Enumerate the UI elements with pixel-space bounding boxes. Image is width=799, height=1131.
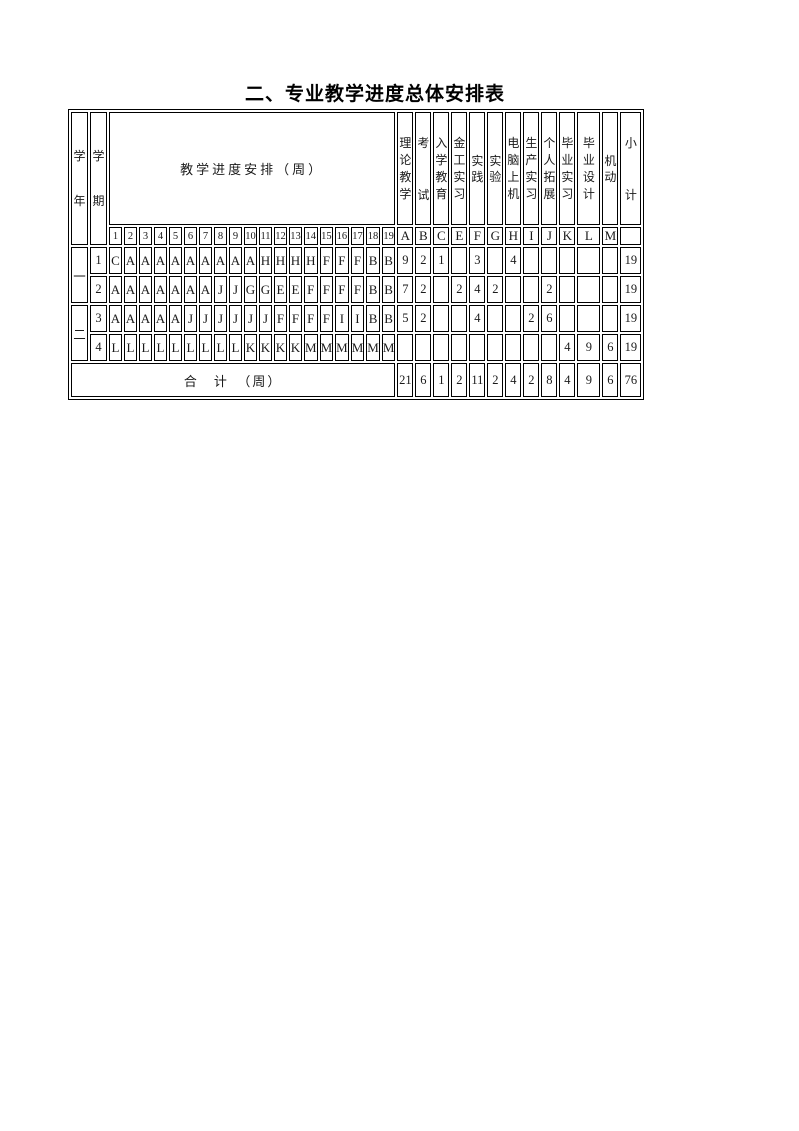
week-cell: J [259, 305, 272, 332]
count-cell [541, 334, 557, 361]
vertical-text: 学年 [73, 129, 87, 229]
vertical-text-char: 实 [489, 155, 501, 167]
week-cell: J [214, 276, 227, 303]
total-count-cell: 2 [451, 363, 467, 397]
week-number-cell: 8 [214, 227, 227, 245]
vertical-text: 电脑上机 [506, 137, 520, 201]
col-code-cell-J: J [541, 227, 557, 245]
vertical-text-char: 习 [525, 188, 537, 200]
total-count-cell: 11 [469, 363, 485, 397]
week-cell: M [382, 334, 396, 361]
col-header-K: 毕业实习 [559, 112, 575, 225]
vertical-text-char: 考 [417, 137, 429, 149]
count-cell: 1 [433, 247, 449, 274]
week-cell: A [199, 247, 212, 274]
vertical-text-char: 入 [435, 137, 447, 149]
vertical-text-char: 期 [92, 195, 104, 207]
week-cell: F [304, 276, 318, 303]
week-cell: I [335, 305, 349, 332]
week-cell: A [124, 247, 137, 274]
week-number-cell: 2 [124, 227, 137, 245]
vertical-text-char: 展 [543, 188, 555, 200]
total-row: 合 计 （周）2161211242849676 [71, 363, 641, 397]
week-number-cell: 9 [229, 227, 242, 245]
week-cell: L [169, 334, 182, 361]
count-cell: 2 [523, 305, 539, 332]
total-count-cell: 6 [602, 363, 618, 397]
count-cell: 2 [541, 276, 557, 303]
week-cell: A [109, 276, 122, 303]
week-cell: L [124, 334, 137, 361]
week-cell: F [320, 247, 334, 274]
week-cell: G [259, 276, 272, 303]
vertical-text-char: 业 [583, 154, 595, 166]
count-cell [523, 247, 539, 274]
row-subtotal-cell: 19 [620, 305, 641, 332]
count-cell [433, 334, 449, 361]
week-cell: F [320, 276, 334, 303]
week-cell: B [366, 247, 380, 274]
vertical-text: 个人拓展 [542, 137, 556, 201]
count-cell [433, 276, 449, 303]
count-cell: 2 [415, 247, 431, 274]
row-subtotal-cell: 19 [620, 276, 641, 303]
week-cell: M [366, 334, 380, 361]
count-cell: 4 [469, 276, 485, 303]
week-cell: A [199, 276, 212, 303]
vertical-text-char: 毕 [561, 137, 573, 149]
week-cell: L [214, 334, 227, 361]
count-cell [559, 247, 575, 274]
col-header-L: 毕业设计 [577, 112, 600, 225]
count-cell [559, 276, 575, 303]
count-cell [523, 334, 539, 361]
week-cell: A [139, 247, 152, 274]
vertical-text-char: 习 [561, 188, 573, 200]
vertical-text-char: 实 [525, 171, 537, 183]
week-cell: K [274, 334, 287, 361]
week-number-cell: 12 [274, 227, 287, 245]
week-cell: J [214, 305, 227, 332]
subtotal-code-spacer [620, 227, 641, 245]
count-cell: 3 [469, 247, 485, 274]
vertical-text: 实验 [488, 137, 502, 201]
count-cell [469, 334, 485, 361]
count-cell: 4 [559, 334, 575, 361]
header-row-codes: 12345678910111213141516171819ABCEFGHIJKL… [71, 227, 641, 245]
vertical-text-char: 个 [543, 137, 555, 149]
row-subtotal-cell: 19 [620, 247, 641, 274]
vertical-text-char: 产 [525, 154, 537, 166]
count-cell: 6 [602, 334, 618, 361]
week-number-cell: 15 [320, 227, 334, 245]
col-header-A: 理论教学 [397, 112, 413, 225]
col-code-cell-L: L [577, 227, 600, 245]
week-cell: A [154, 247, 167, 274]
vertical-text-char: 拓 [543, 171, 555, 183]
total-count-cell: 9 [577, 363, 600, 397]
count-cell [505, 305, 521, 332]
week-cell: A [214, 247, 227, 274]
col-header-G: 实验 [487, 112, 503, 225]
col-header-H: 电脑上机 [505, 112, 521, 225]
week-cell: E [289, 276, 302, 303]
col-code-cell-M: M [602, 227, 618, 245]
col-code-cell-G: G [487, 227, 503, 245]
semester-cell: 2 [90, 276, 107, 303]
vertical-text-char: 小 [625, 137, 637, 149]
vertical-text-char: 试 [417, 189, 429, 201]
week-cell: F [304, 305, 318, 332]
count-cell: 6 [541, 305, 557, 332]
week-cell: K [289, 334, 302, 361]
count-cell [577, 247, 600, 274]
semester-row: 2AAAAAAAJJGGEEFFFFBB72242219 [71, 276, 641, 303]
count-cell [541, 247, 557, 274]
col-code-cell-B: B [415, 227, 431, 245]
week-cell: H [304, 247, 318, 274]
header-row-main: 学年学期教学进度安排（周）理论教学考试入学教育金工实习实践实验电脑上机生产实习个… [71, 112, 641, 225]
week-cell: A [169, 247, 182, 274]
vertical-text: 实践 [470, 137, 484, 201]
week-cell: A [184, 247, 197, 274]
vertical-text-char: 脑 [507, 154, 519, 166]
week-number-cell: 17 [351, 227, 365, 245]
count-cell [487, 305, 503, 332]
vertical-text: 生产实习 [524, 137, 538, 201]
week-cell: A [154, 276, 167, 303]
count-cell [415, 334, 431, 361]
week-number-cell: 7 [199, 227, 212, 245]
count-cell [451, 305, 467, 332]
vertical-text-char: 教 [435, 171, 447, 183]
vertical-text-char: 论 [399, 154, 411, 166]
col-code-cell-A: A [397, 227, 413, 245]
vertical-text-char: 设 [583, 171, 595, 183]
vertical-text: 入学教育 [434, 137, 448, 201]
week-cell: A [229, 247, 242, 274]
vertical-text: 考试 [416, 137, 430, 201]
week-cell: J [199, 305, 212, 332]
vertical-text-char: 人 [543, 154, 555, 166]
total-count-cell: 4 [505, 363, 521, 397]
week-number-cell: 1 [109, 227, 122, 245]
vertical-text-char: 学 [73, 150, 85, 162]
count-cell: 4 [505, 247, 521, 274]
week-cell: C [109, 247, 122, 274]
total-count-cell: 2 [487, 363, 503, 397]
week-cell: F [274, 305, 287, 332]
count-cell [602, 276, 618, 303]
week-number-cell: 18 [366, 227, 380, 245]
vertical-text-char: 学 [399, 188, 411, 200]
week-cell: F [289, 305, 302, 332]
col-code-cell-E: E [451, 227, 467, 245]
vertical-text-char: 学 [435, 154, 447, 166]
week-cell: F [320, 305, 334, 332]
week-cell: H [259, 247, 272, 274]
col-header-J: 个人拓展 [541, 112, 557, 225]
week-number-cell: 19 [382, 227, 396, 245]
week-cell: B [366, 305, 380, 332]
semester-row: 二3AAAAAJJJJJJFFFFIIBB5242619 [71, 305, 641, 332]
count-cell [602, 305, 618, 332]
week-cell: L [199, 334, 212, 361]
grand-total-cell: 76 [620, 363, 641, 397]
week-cell: J [244, 305, 257, 332]
week-cell: L [154, 334, 167, 361]
vertical-text: 金工实习 [452, 137, 466, 201]
vertical-text: 学期 [92, 129, 106, 229]
count-cell [523, 276, 539, 303]
year-label-cell: 一 [71, 247, 88, 303]
semester-row: 一1CAAAAAAAAAHHHHFFFBB9213419 [71, 247, 641, 274]
col-code-cell-F: F [469, 227, 485, 245]
vertical-text-char: 实 [453, 171, 465, 183]
schedule-table: 学年学期教学进度安排（周）理论教学考试入学教育金工实习实践实验电脑上机生产实习个… [68, 109, 644, 400]
vertical-text: 毕业设计 [582, 137, 596, 201]
week-cell: A [169, 305, 182, 332]
semester-row: 4LLLLLLLLLKKKKMMMMMM49619 [71, 334, 641, 361]
week-number-cell: 5 [169, 227, 182, 245]
week-cell: F [335, 247, 349, 274]
count-cell [487, 334, 503, 361]
vertical-text-char: 机 [507, 188, 519, 200]
schedule-body: 学年学期教学进度安排（周）理论教学考试入学教育金工实习实践实验电脑上机生产实习个… [71, 112, 641, 397]
week-cell: M [351, 334, 365, 361]
vertical-text: 机动 [603, 137, 617, 201]
year-axis-header: 学年 [71, 112, 88, 245]
year-label-cell: 二 [71, 305, 88, 361]
vertical-text-char: 习 [453, 188, 465, 200]
vertical-text: 小计 [624, 137, 638, 201]
vertical-text-char: 机 [604, 155, 616, 167]
count-cell: 2 [415, 276, 431, 303]
week-cell: A [124, 276, 137, 303]
col-header-E: 金工实习 [451, 112, 467, 225]
week-cell: A [169, 276, 182, 303]
count-cell: 2 [487, 276, 503, 303]
count-cell: 7 [397, 276, 413, 303]
week-number-cell: 10 [244, 227, 257, 245]
vertical-text-char: 金 [453, 137, 465, 149]
total-count-cell: 4 [559, 363, 575, 397]
vertical-text-char: 实 [471, 155, 483, 167]
count-cell [487, 247, 503, 274]
week-cell: J [184, 305, 197, 332]
semester-cell: 4 [90, 334, 107, 361]
count-cell: 5 [397, 305, 413, 332]
week-cell: F [335, 276, 349, 303]
col-code-cell-I: I [523, 227, 539, 245]
document-page: 二、专业教学进度总体安排表 学年学期教学进度安排（周）理论教学考试入学教育金工实… [0, 0, 799, 1131]
vertical-text-char: 育 [435, 188, 447, 200]
count-cell [559, 305, 575, 332]
week-cell: B [382, 305, 396, 332]
week-number-cell: 14 [304, 227, 318, 245]
week-cell: A [109, 305, 122, 332]
week-cell: A [244, 247, 257, 274]
week-cell: M [320, 334, 334, 361]
vertical-text-char: 动 [604, 171, 616, 183]
vertical-text-char: 计 [625, 189, 637, 201]
vertical-text-char: 实 [561, 171, 573, 183]
week-cell: L [139, 334, 152, 361]
week-number-cell: 16 [335, 227, 349, 245]
vertical-text-char: 业 [561, 154, 573, 166]
vertical-text-char: 上 [507, 171, 519, 183]
week-cell: A [154, 305, 167, 332]
count-cell [505, 276, 521, 303]
vertical-text-char: 工 [453, 154, 465, 166]
vertical-text-char: 学 [92, 150, 104, 162]
progress-header: 教学进度安排（周） [109, 112, 395, 225]
count-cell [577, 276, 600, 303]
week-cell: L [109, 334, 122, 361]
total-count-cell: 21 [397, 363, 413, 397]
week-cell: L [229, 334, 242, 361]
total-label-cell: 合 计 （周） [71, 363, 395, 397]
count-cell: 2 [415, 305, 431, 332]
week-cell: M [335, 334, 349, 361]
week-number-cell: 3 [139, 227, 152, 245]
semester-axis-header: 学期 [90, 112, 107, 245]
week-number-cell: 4 [154, 227, 167, 245]
week-cell: G [244, 276, 257, 303]
row-subtotal-cell: 19 [620, 334, 641, 361]
vertical-text-char: 生 [525, 137, 537, 149]
vertical-text-char: 教 [399, 171, 411, 183]
col-header-B: 考试 [415, 112, 431, 225]
week-cell: B [382, 247, 396, 274]
col-header-I: 生产实习 [523, 112, 539, 225]
week-cell: E [274, 276, 287, 303]
week-cell: J [229, 305, 242, 332]
week-cell: B [366, 276, 380, 303]
count-cell: 2 [451, 276, 467, 303]
week-cell: F [351, 247, 365, 274]
week-number-cell: 13 [289, 227, 302, 245]
week-cell: A [124, 305, 137, 332]
vertical-text-char: 践 [471, 171, 483, 183]
subtotal-header: 小计 [620, 112, 641, 225]
count-cell [397, 334, 413, 361]
week-cell: A [184, 276, 197, 303]
col-code-cell-K: K [559, 227, 575, 245]
vertical-text-char: 电 [507, 137, 519, 149]
week-cell: L [184, 334, 197, 361]
col-code-cell-H: H [505, 227, 521, 245]
vertical-text-char: 年 [73, 195, 85, 207]
week-cell: M [304, 334, 318, 361]
vertical-text-char: 计 [583, 188, 595, 200]
week-cell: A [139, 305, 152, 332]
vertical-text-char: 理 [399, 137, 411, 149]
week-cell: K [244, 334, 257, 361]
week-cell: B [382, 276, 396, 303]
total-count-cell: 6 [415, 363, 431, 397]
count-cell [602, 247, 618, 274]
count-cell [577, 305, 600, 332]
week-number-cell: 11 [259, 227, 272, 245]
week-number-cell: 6 [184, 227, 197, 245]
vertical-text: 毕业实习 [560, 137, 574, 201]
count-cell [451, 247, 467, 274]
count-cell [433, 305, 449, 332]
col-header-M: 机动 [602, 112, 618, 225]
count-cell: 9 [577, 334, 600, 361]
count-cell [451, 334, 467, 361]
vertical-text-char: 验 [489, 171, 501, 183]
count-cell: 4 [469, 305, 485, 332]
count-cell: 9 [397, 247, 413, 274]
total-count-cell: 8 [541, 363, 557, 397]
total-count-cell: 2 [523, 363, 539, 397]
count-cell [505, 334, 521, 361]
vertical-text: 理论教学 [398, 137, 412, 201]
total-count-cell: 1 [433, 363, 449, 397]
col-code-cell-C: C [433, 227, 449, 245]
week-cell: I [351, 305, 365, 332]
semester-cell: 1 [90, 247, 107, 274]
col-header-C: 入学教育 [433, 112, 449, 225]
col-header-F: 实践 [469, 112, 485, 225]
week-cell: H [289, 247, 302, 274]
week-cell: J [229, 276, 242, 303]
page-title: 二、专业教学进度总体安排表 [68, 79, 682, 106]
week-cell: H [274, 247, 287, 274]
week-cell: A [139, 276, 152, 303]
vertical-text-char: 毕 [583, 137, 595, 149]
semester-cell: 3 [90, 305, 107, 332]
week-cell: K [259, 334, 272, 361]
week-cell: F [351, 276, 365, 303]
